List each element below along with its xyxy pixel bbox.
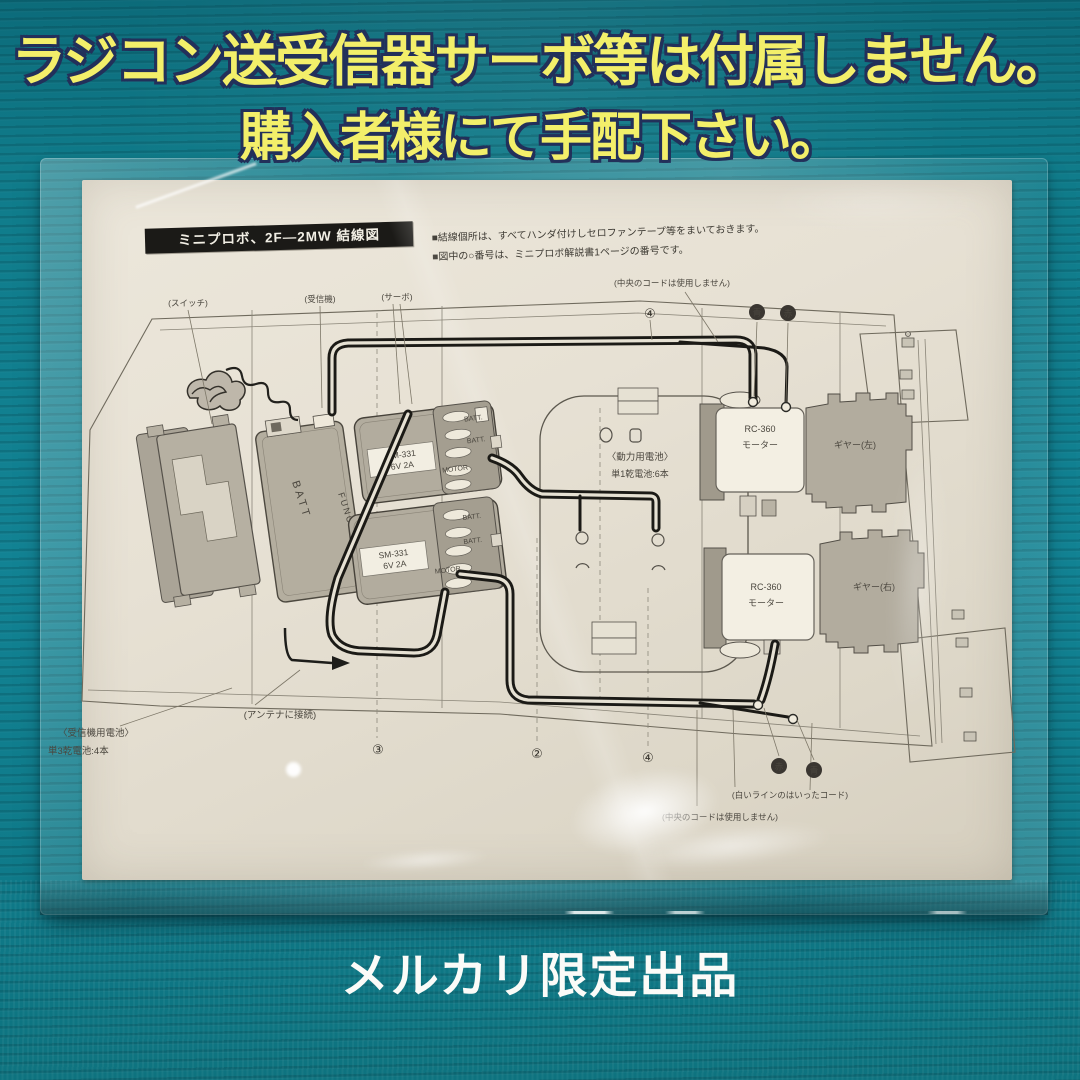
circled-number-4-bottom: ④ [642,750,654,765]
label-receiver: (受信機) [304,294,335,304]
wire-dot-blue-top-label: 青 [753,308,762,318]
label-switch: (スイッチ) [168,298,208,308]
headline-line1: ラジコン送受信器サーボ等は付属しません。 [0,22,1080,101]
gear-right-label: ギヤー(右) [853,581,895,592]
servo-bottom: SM-331 6V 2A BATT. BATT. MOTOR [347,496,507,606]
wiring-diagram: BATT FUNC 2 SM [40,158,1048,915]
circled-number-3: ③ [372,742,384,757]
caption-text: メルカリ限定出品 [0,936,1080,1006]
motor-top-assembly: RC-360 モーター ギヤー(左) [700,392,912,516]
label-servo: (サーボ) [381,292,412,302]
antenna-arrow [332,656,350,670]
wire-dot-red-top-label: 赤 [784,309,793,319]
motor-top-type: モーター [742,440,778,450]
label-antenna: (アンテナに接続) [244,709,316,721]
label-rx-battery-2: 単3乾電池:4本 [48,745,109,757]
circled-number-2: ② [531,746,543,761]
power-battery-line2: 単1乾電池:6本 [611,468,669,479]
wire-dot-blue-bottom-label: 青 [810,766,819,776]
label-white-line-cord: (白いラインのはいったコード) [732,790,848,800]
motor-bottom-assembly: RC-360 モーター ギヤー(右) [704,530,924,658]
antenna-wire [187,368,298,420]
gear-left-label: ギヤー(左) [834,439,876,450]
motor-top-name: RC-360 [744,424,775,434]
circled-number-4-top: ④ [644,306,656,321]
label-center-cord-bottom: (中央のコードは使用しません) [662,812,778,822]
photo-stage: ラジコン送受信器サーボ等は付属しません。 購入者様にて手配下さい。 ミニプロボ、… [0,0,1080,1080]
label-rx-battery-1: 〈受信機用電池〉 [58,727,134,739]
plastic-bag: ミニプロボ、2F—2MW 結線図 ■結線個所は、すべてハンダ付けしセロファンテー… [40,158,1048,915]
headline-overlay: ラジコン送受信器サーボ等は付属しません。 購入者様にて手配下さい。 [0,22,1080,176]
motor-bottom-type: モーター [748,598,784,608]
motor-bottom-name: RC-360 [750,582,781,592]
power-battery-line1: 〈動力用電池〉 [607,451,674,463]
switch-assembly [135,414,262,609]
label-center-cord-top: (中央のコードは使用しません) [614,278,730,288]
receiver-unit: BATT FUNC 2 [253,410,367,603]
headline-line2: 購入者様にて手配下さい。 [0,101,1080,176]
wire-dot-red-bottom-label: 赤 [775,762,784,772]
